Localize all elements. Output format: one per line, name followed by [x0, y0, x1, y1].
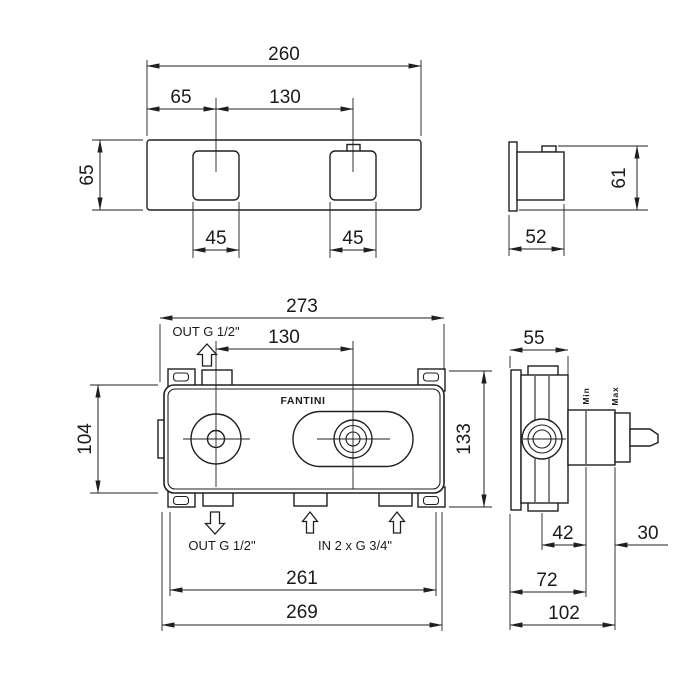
- dim-plate-height: 65: [77, 164, 98, 185]
- dim-handle-offset: 65: [170, 87, 191, 108]
- technical-drawing: 260 65 130 65 45 45 61 52: [0, 0, 700, 700]
- wall-flange: [511, 370, 521, 510]
- dim-port-spacing: 130: [268, 327, 300, 348]
- rough-in-view: FANTINI 273 OUT G 1/2" 130 104 133: [75, 296, 492, 631]
- dim-overall-width: 260: [268, 44, 300, 65]
- technical-drawing-page: 260 65 130 65 45 45 61 52: [0, 0, 700, 700]
- dim-handle1-width: 45: [205, 228, 226, 249]
- dim-handle2-width: 45: [342, 228, 363, 249]
- dim-wall-mid-depth: 72: [536, 570, 557, 591]
- rough-in-side-view: Min Max 55 42 30 72 102: [510, 328, 668, 630]
- max-label: Max: [610, 386, 620, 405]
- dim-body-height: 104: [75, 423, 96, 455]
- top-outlet-label: OUT G 1/2": [172, 324, 240, 339]
- wall-plate-side: [509, 142, 517, 211]
- dim-body-depth: 55: [523, 328, 544, 349]
- front-view: 260 65 130 65 45 45: [77, 44, 421, 258]
- dim-frame-width: 269: [286, 602, 318, 623]
- brand-logo: FANTINI: [280, 395, 325, 407]
- dim-wall-max-depth: 102: [548, 603, 580, 624]
- trim-plate: [147, 140, 421, 210]
- dim-handle-height: 61: [609, 167, 630, 188]
- spindle-stem: [630, 429, 658, 446]
- min-label: Min: [581, 387, 591, 404]
- flow-arrow-up-inlet-2: [390, 512, 405, 533]
- dim-handle-depth: 52: [525, 227, 546, 248]
- flow-arrow-up-outlet: [198, 344, 217, 366]
- dim-handle-spacing: 130: [269, 87, 301, 108]
- dim-frame-height: 133: [454, 423, 475, 455]
- dim-body-overall-width: 273: [286, 296, 318, 317]
- dim-body-width: 261: [286, 568, 318, 589]
- bottom-outlet-label: OUT G 1/2": [188, 538, 256, 553]
- handle-button-side: [542, 146, 556, 152]
- cartridge-cap: [615, 413, 630, 462]
- dim-wall-min-depth: 42: [552, 523, 573, 544]
- flow-arrow-down-outlet: [206, 512, 225, 534]
- cartridge-side: [568, 410, 615, 465]
- handle-side-view: 61 52: [509, 142, 648, 256]
- flow-arrow-up-inlet-1: [303, 512, 318, 533]
- handle-side: [517, 152, 564, 200]
- inlet-label: IN 2 x G 3/4": [318, 538, 392, 553]
- dim-adjustment-range: 30: [637, 523, 658, 544]
